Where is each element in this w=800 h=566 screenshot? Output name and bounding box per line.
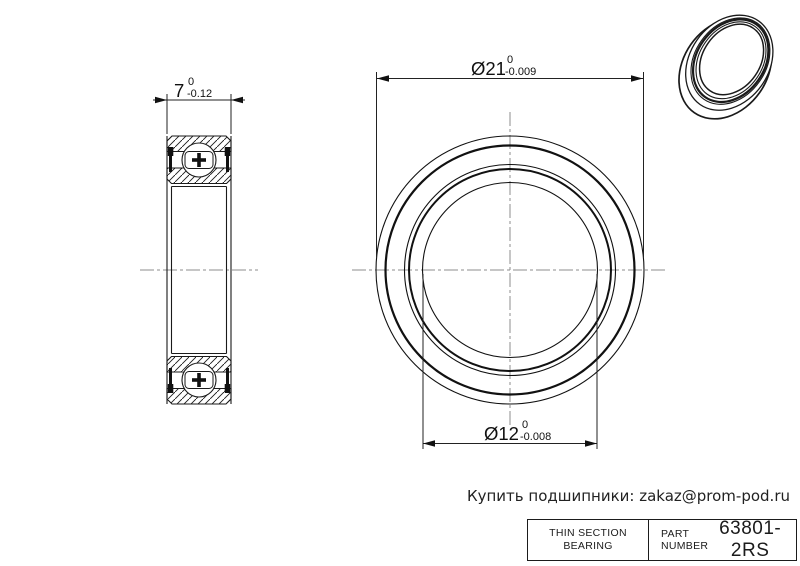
technical-drawing: 7 0 -0.12 Ø21 0 -0.009 Ø12 xyxy=(0,0,800,566)
arrowhead xyxy=(423,440,435,446)
arrowhead xyxy=(377,75,389,81)
dim-bore-nominal: Ø12 xyxy=(484,423,519,444)
title-block-description: THIN SECTION BEARING xyxy=(528,520,649,560)
dim-od-tol-upper: 0 xyxy=(507,54,513,66)
arrowhead xyxy=(231,97,243,103)
isometric-bearing-view xyxy=(660,0,793,137)
section-view xyxy=(140,136,258,404)
arrowhead xyxy=(585,440,597,446)
part-label-line2: NUMBER xyxy=(661,540,708,552)
description-line1: THIN SECTION xyxy=(549,527,627,540)
title-block: THIN SECTION BEARING PART NUMBER 63801-2… xyxy=(527,519,797,561)
dimension-width: 7 0 -0.12 xyxy=(153,76,245,134)
description-line2: BEARING xyxy=(563,540,612,553)
dim-width-tol-lower: -0.12 xyxy=(187,88,212,100)
dim-od-nominal: Ø21 xyxy=(471,58,506,79)
dim-width-nominal: 7 xyxy=(174,80,184,101)
bearing-drawing-page: 7 0 -0.12 Ø21 0 -0.009 Ø12 xyxy=(0,0,800,566)
arrowhead xyxy=(631,75,643,81)
dim-bore-tol-upper: 0 xyxy=(522,419,528,431)
part-number-label: PART NUMBER xyxy=(661,528,708,552)
dim-width-tol-upper: 0 xyxy=(188,76,194,88)
dim-od-tol-lower: -0.009 xyxy=(505,66,536,78)
promo-contact-text: Купить подшипники: zakaz@prom-pod.ru xyxy=(467,487,790,505)
dim-bore-tol-lower: -0.008 xyxy=(520,431,551,443)
part-number-value: 63801-2RS xyxy=(708,518,796,562)
part-label-line1: PART xyxy=(661,528,708,540)
title-block-part-cell: PART NUMBER 63801-2RS xyxy=(649,520,796,560)
arrowhead xyxy=(155,97,167,103)
front-view xyxy=(352,112,668,428)
